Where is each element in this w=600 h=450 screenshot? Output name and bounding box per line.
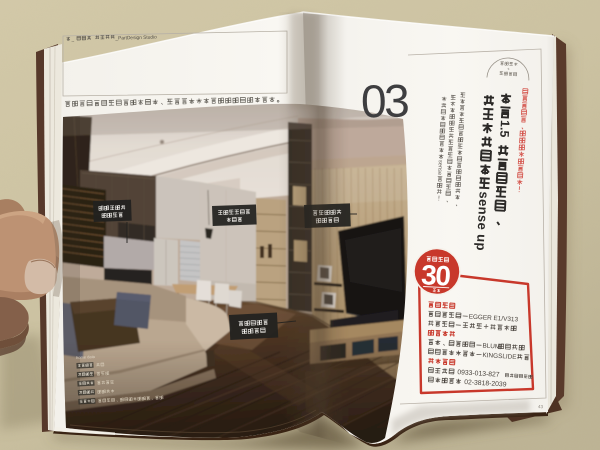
svg-text:1.5: 1.5 — [497, 120, 512, 138]
svg-text:03: 03 — [361, 75, 409, 128]
svg-text:_PartDesign Studio: _PartDesign Studio — [114, 34, 157, 41]
svg-text:BLUM: BLUM — [482, 343, 500, 351]
svg-text:sense: sense — [436, 160, 443, 175]
svg-text:_: _ — [70, 37, 74, 42]
svg-text:home data: home data — [76, 354, 96, 360]
svg-text:43: 43 — [538, 404, 544, 409]
svg-text:sense up: sense up — [474, 191, 492, 251]
